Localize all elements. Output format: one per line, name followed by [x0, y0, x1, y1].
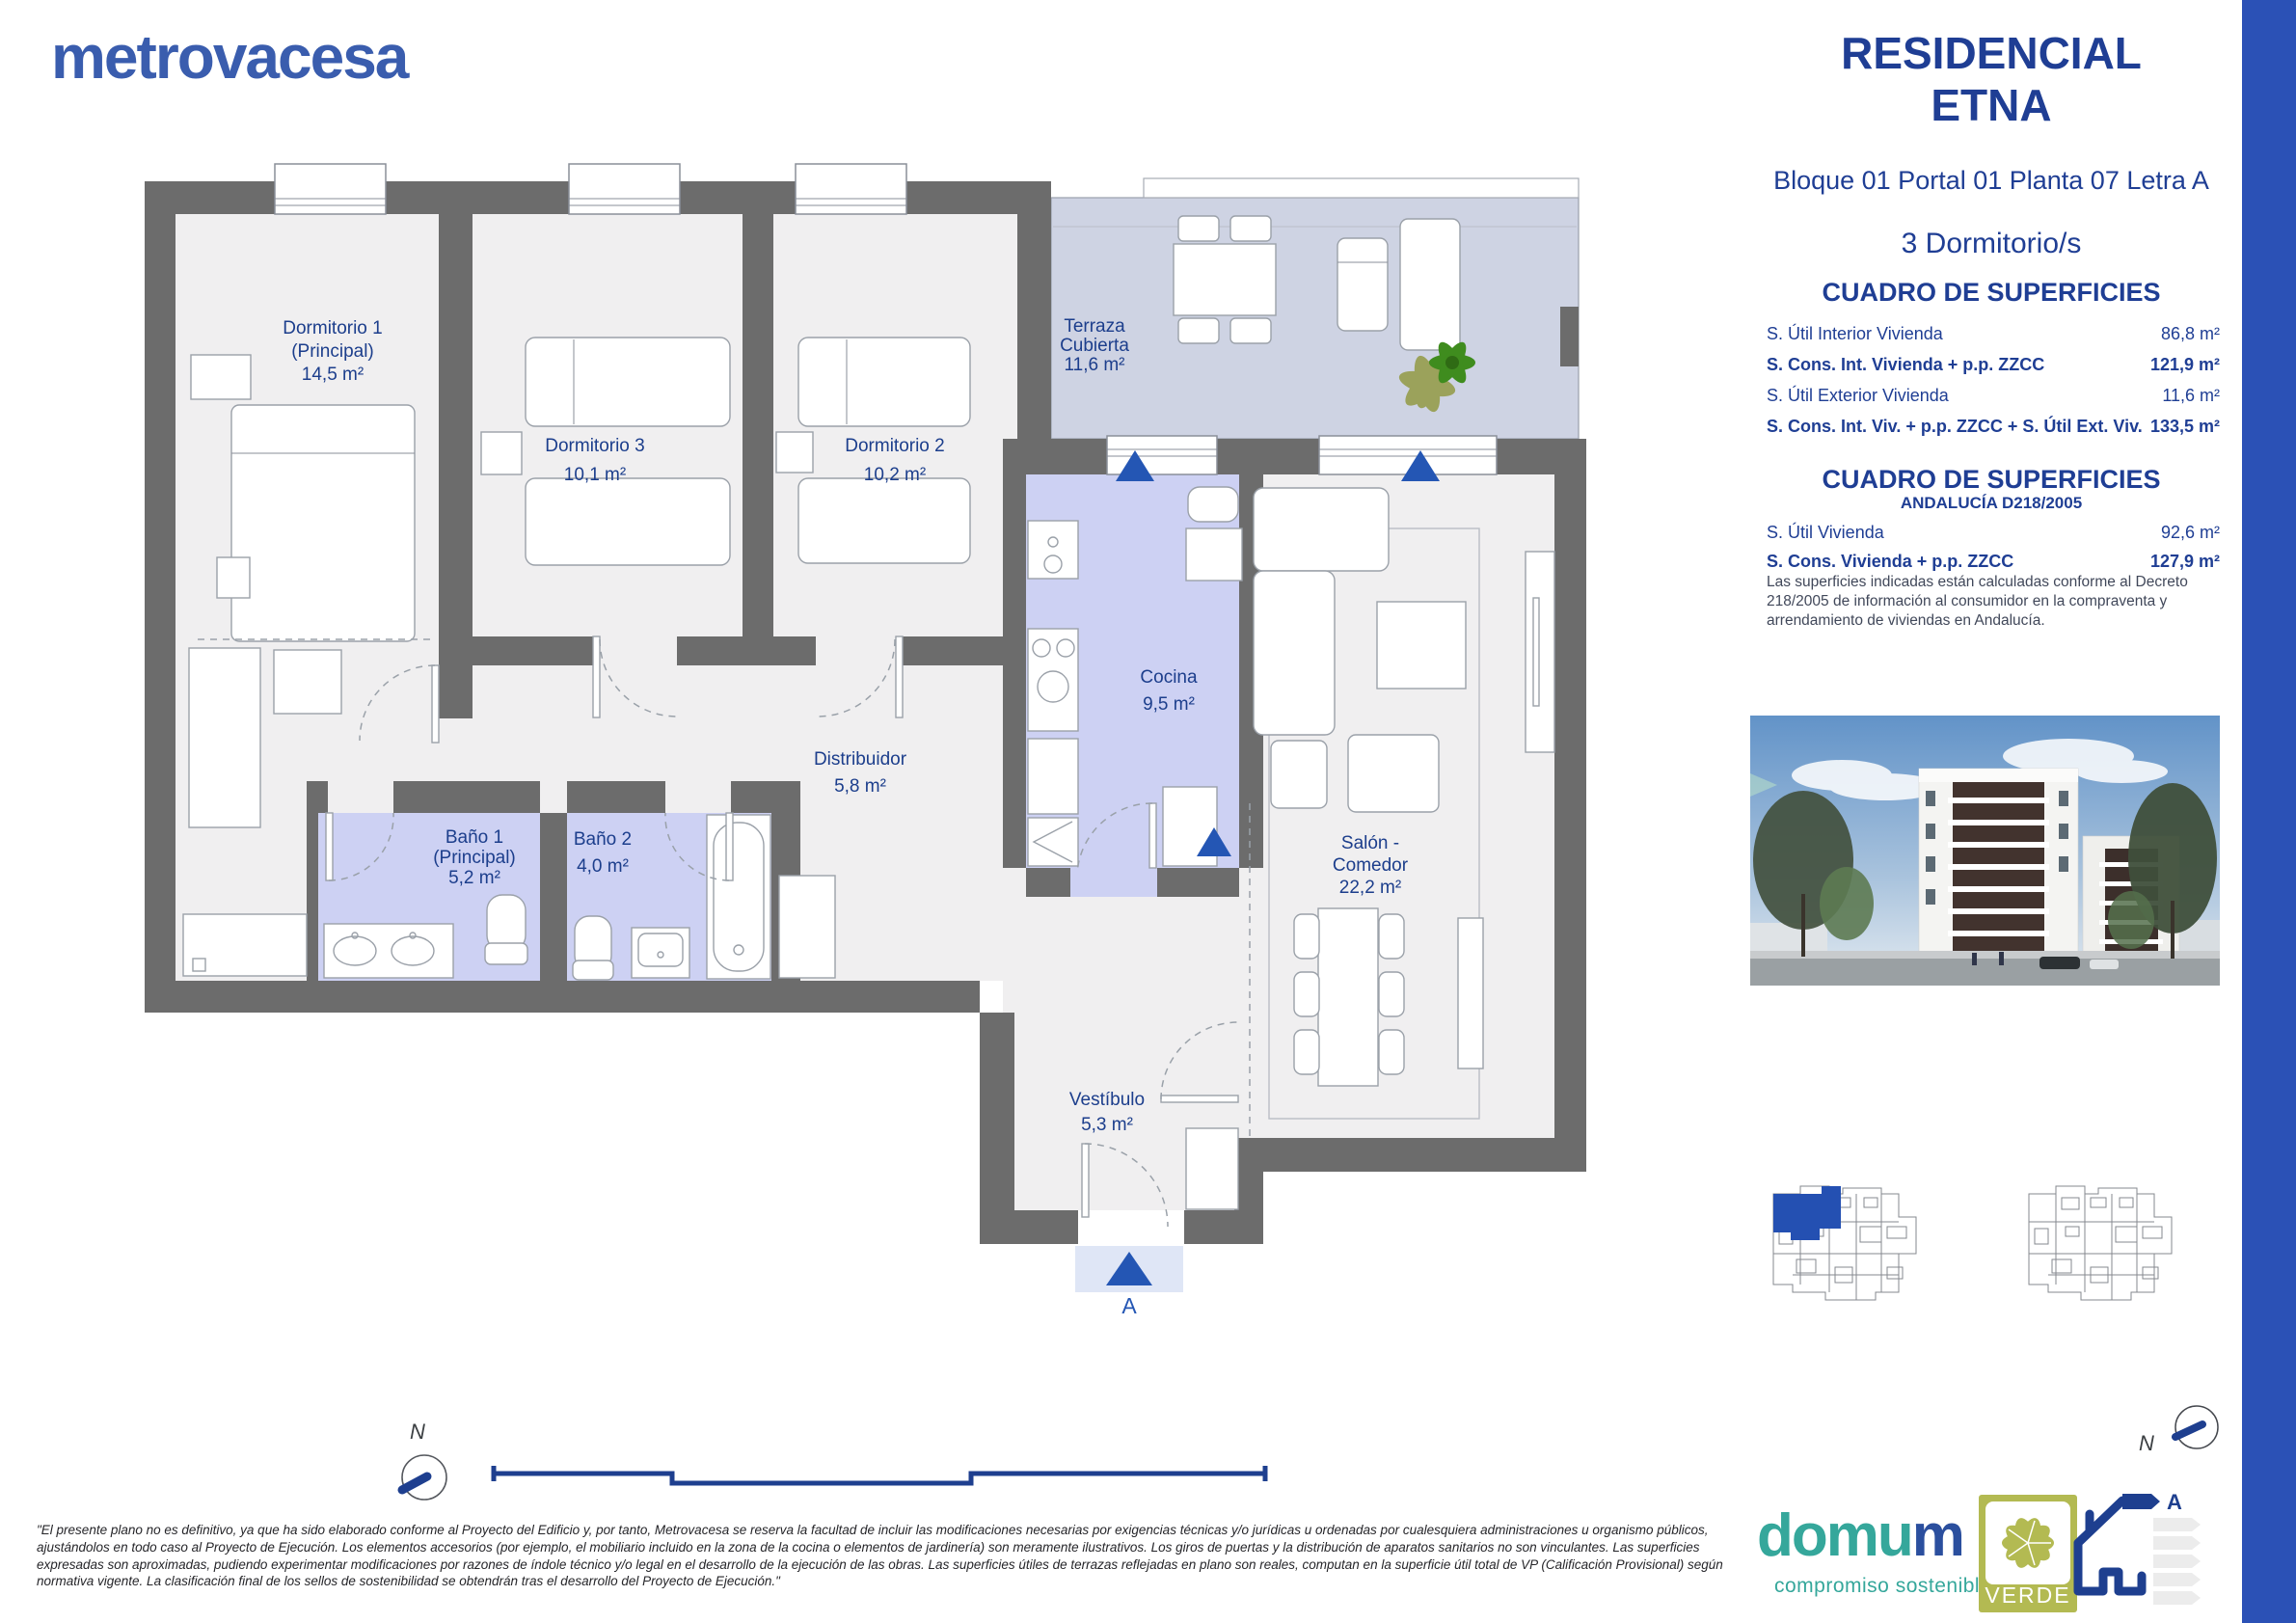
key-plan-unit-highlight — [1773, 1186, 1841, 1240]
domum-logo: domum — [1757, 1506, 1963, 1566]
room-label-dormitorio2: Dormitorio 2 — [845, 436, 944, 456]
surface-row: S. Útil Vivienda92,6 m² — [1767, 523, 2220, 543]
room-label-distribuidor: Distribuidor — [814, 749, 907, 770]
decree-note: Las superficies indicadas están calculad… — [1767, 573, 2218, 631]
page-title-line1: RESIDENCIAL — [1745, 27, 2237, 79]
unit-location: Bloque 01 Portal 01 Planta 07 Letra A — [1745, 166, 2237, 196]
svg-text:4,0 m²: 4,0 m² — [577, 856, 629, 877]
compass-icon — [391, 1445, 463, 1512]
energy-rating-label: A — [2167, 1490, 2182, 1514]
building-render-image — [1750, 716, 2220, 986]
surface-row: S. Cons. Vivienda + p.p. ZZCC127,9 m² — [1767, 552, 2220, 572]
surface-row: S. Útil Interior Vivienda86,8 m² — [1767, 324, 2220, 344]
page-title-line2: ETNA — [1745, 79, 2237, 131]
svg-text:Cubierta: Cubierta — [1060, 336, 1129, 356]
svg-text:10,2 m²: 10,2 m² — [864, 465, 926, 485]
scale-bar — [487, 1458, 1278, 1493]
svg-text:10,1 m²: 10,1 m² — [564, 465, 626, 485]
room-label-cocina: Cocina — [1140, 667, 1198, 688]
surface-row: S. Cons. Int. Viv. + p.p. ZZCC + S. Útil… — [1767, 417, 2220, 437]
surfaces-table-title: CUADRO DE SUPERFICIES — [1745, 278, 2237, 308]
room-label-terraza: Terraza — [1064, 316, 1125, 337]
surface-row: S. Cons. Int. Vivienda + p.p. ZZCC121,9 … — [1767, 355, 2220, 375]
room-label-dormitorio1: Dormitorio 1 — [283, 318, 382, 338]
bedroom-count: 3 Dormitorio/s — [1745, 228, 2237, 260]
energy-house-icon: A — [2068, 1475, 2223, 1620]
svg-text:5,2 m²: 5,2 m² — [448, 868, 500, 888]
right-accent-bar — [2242, 0, 2296, 1623]
surface-row: S. Útil Exterior Vivienda11,6 m² — [1767, 386, 2220, 406]
verde-label: VERDE — [1985, 1582, 2070, 1608]
compass-icon-right — [2168, 1398, 2235, 1466]
svg-text:11,6 m²: 11,6 m² — [1064, 355, 1124, 375]
room-label-vestibulo: Vestíbulo — [1069, 1090, 1145, 1110]
svg-text:Comedor: Comedor — [1333, 855, 1409, 876]
floor-plan: A Dormitorio 1 (Principal) 14,5 m² Dormi… — [0, 0, 1726, 1398]
section-label: A — [1121, 1293, 1137, 1318]
key-plan-plain — [2023, 1178, 2177, 1309]
svg-text:5,3 m²: 5,3 m² — [1081, 1115, 1133, 1135]
plan-sheet: metrovacesa — [0, 0, 2296, 1623]
north-label-right: N — [2139, 1431, 2154, 1456]
svg-text:(Principal): (Principal) — [291, 341, 374, 362]
surfaces-andalucia-title: CUADRO DE SUPERFICIES — [1745, 465, 2237, 495]
verde-badge: VERDE — [1979, 1495, 2077, 1612]
room-label-bano2: Baño 2 — [574, 829, 632, 850]
legal-disclaimer: "El presente plano no es definitivo, ya … — [37, 1522, 1726, 1590]
svg-text:14,5 m²: 14,5 m² — [302, 365, 364, 385]
svg-text:(Principal): (Principal) — [433, 848, 516, 868]
key-plan-highlighted — [1768, 1178, 1922, 1309]
domum-tagline: compromiso sostenible — [1774, 1575, 1991, 1598]
north-label: N — [410, 1420, 425, 1445]
room-label-salon: Salón - — [1341, 833, 1399, 853]
room-label-bano1: Baño 1 — [446, 827, 503, 848]
svg-text:22,2 m²: 22,2 m² — [1339, 878, 1401, 898]
surfaces-andalucia-subtitle: ANDALUCÍA D218/2005 — [1745, 494, 2237, 513]
svg-text:5,8 m²: 5,8 m² — [834, 776, 886, 797]
svg-text:9,5 m²: 9,5 m² — [1143, 694, 1195, 715]
room-label-dormitorio3: Dormitorio 3 — [545, 436, 644, 456]
kitchen-door-strip — [1070, 868, 1157, 897]
